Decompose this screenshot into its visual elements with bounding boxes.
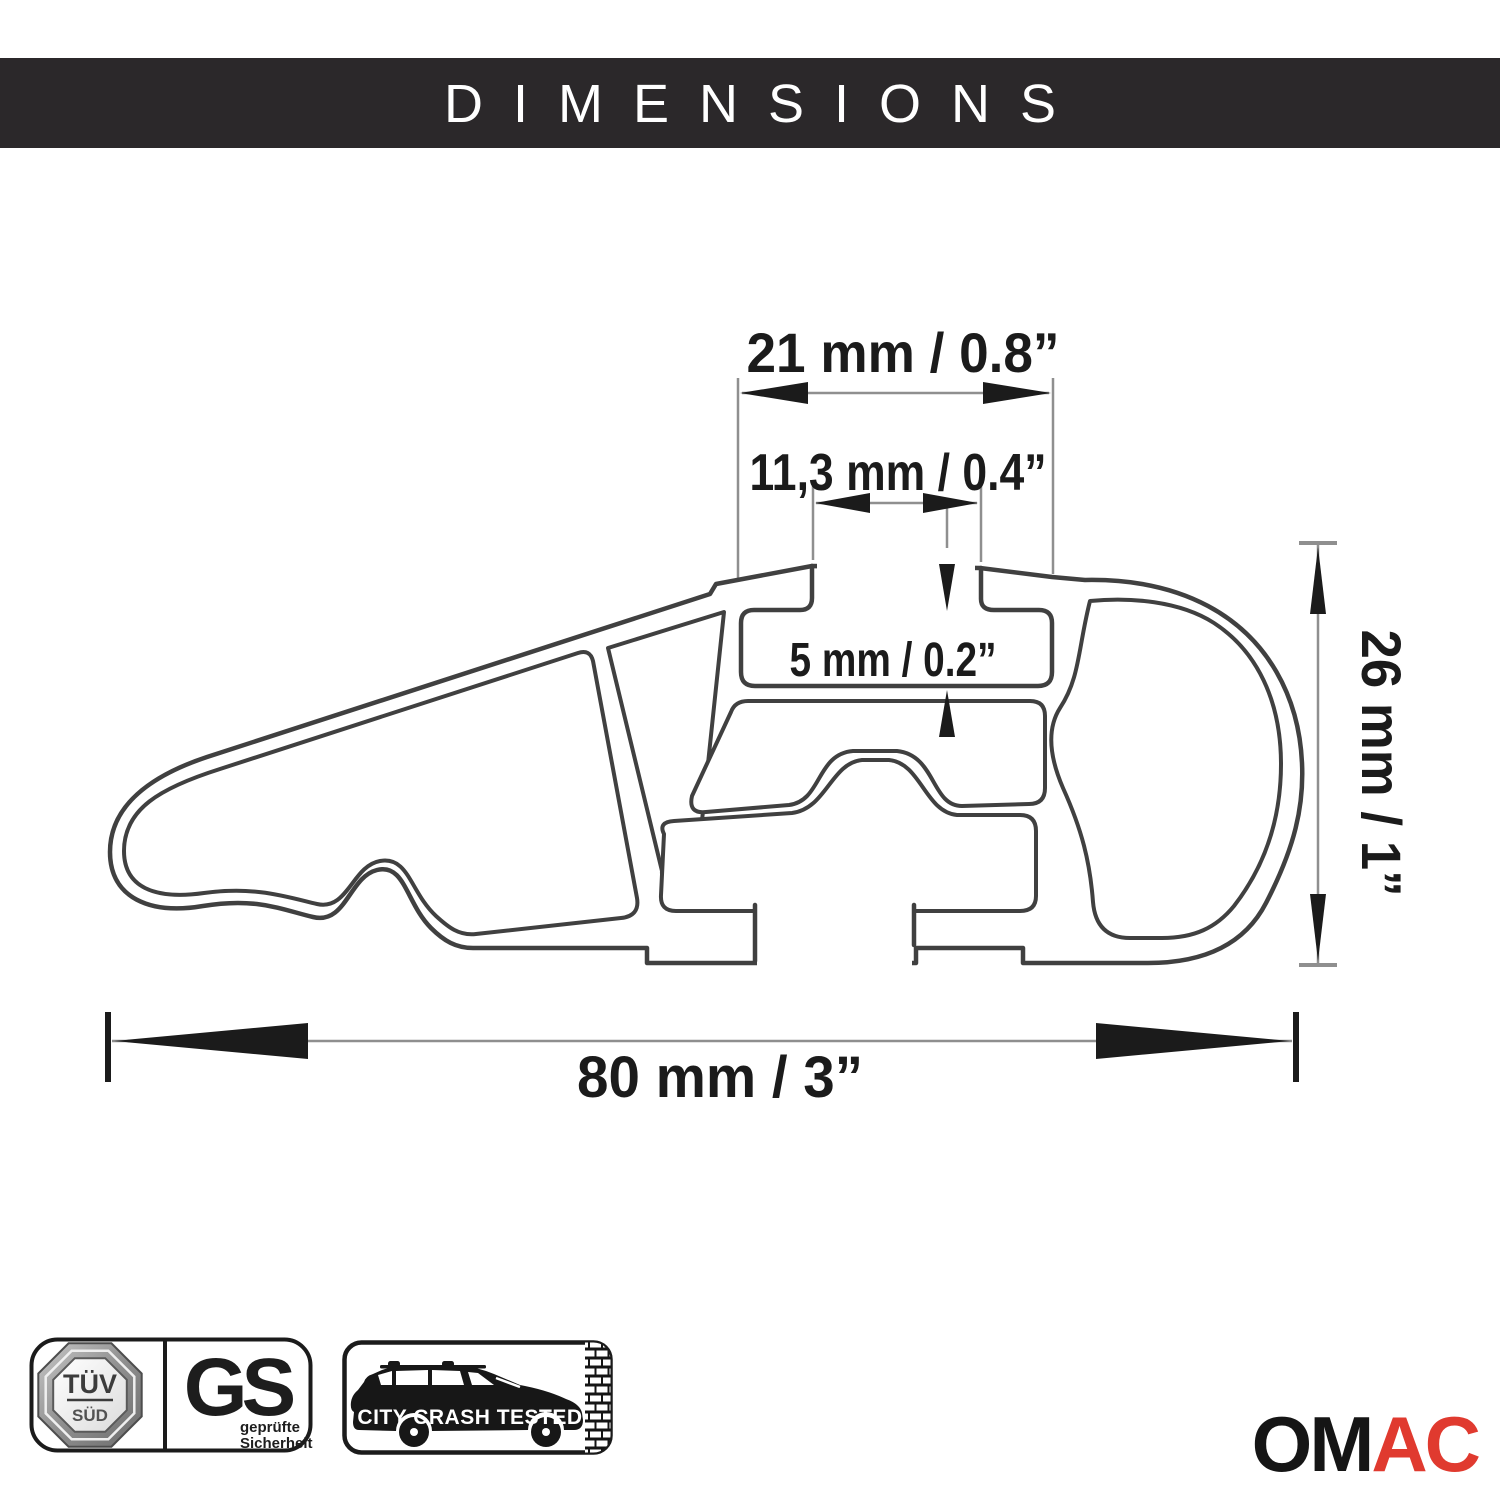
page: DIMENSIONS <box>0 0 1500 1500</box>
tuv-gs-badge-graphic: TÜV SÜD GS geprüfte Sicherheit <box>29 1337 313 1453</box>
label-profile-width: 80 mm / 3” <box>577 1045 863 1110</box>
bottom-slot-opening <box>757 900 912 980</box>
crash-badge-graphic: CITY CRASH TESTED <box>342 1340 613 1455</box>
city-crash-tested-badge: CITY CRASH TESTED <box>342 1340 613 1455</box>
profile-cavities <box>124 600 1281 938</box>
sud-text: SÜD <box>72 1406 108 1425</box>
label-slot-opening: 11,3 mm / 0.4” <box>750 444 1047 502</box>
tuv-sud-octagon: TÜV SÜD <box>38 1343 141 1446</box>
tuv-gs-badge: TÜV SÜD GS geprüfte Sicherheit <box>29 1337 313 1453</box>
label-slot-depth: 5 mm / 0.2” <box>790 634 997 687</box>
omac-logo: OMAC <box>1252 1408 1478 1480</box>
gs-sub1: geprüfte <box>240 1419 300 1436</box>
omac-logo-om: OM <box>1252 1400 1372 1488</box>
label-profile-height: 26 mm / 1” <box>1350 630 1413 897</box>
brick-wall-icon <box>585 1342 612 1454</box>
crossbar-profile-diagram: 21 mm / 0.8” 11,3 mm / 0.4” 5 mm / 0.2” … <box>0 0 1500 1500</box>
label-channel-width: 21 mm / 0.8” <box>747 321 1060 384</box>
gs-sub2: Sicherheit <box>240 1435 313 1452</box>
omac-logo-ac: AC <box>1371 1400 1478 1488</box>
crash-tested-text: CITY CRASH TESTED <box>357 1406 582 1429</box>
tuv-text: TÜV <box>63 1369 117 1399</box>
